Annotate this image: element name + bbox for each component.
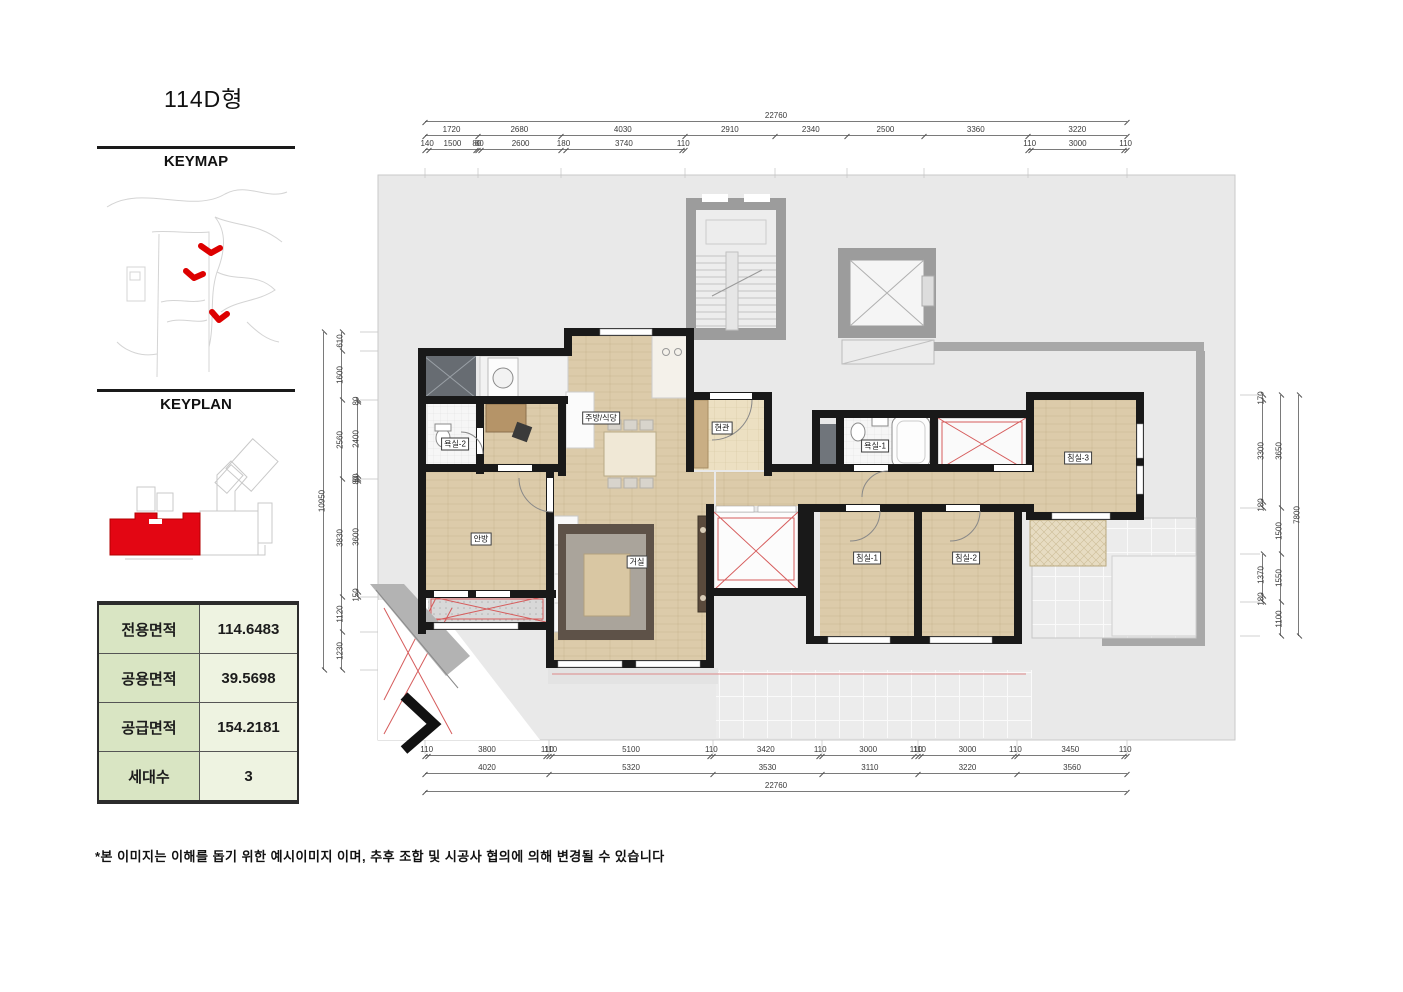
keyplan-header-label: KEYPLAN xyxy=(160,396,232,413)
keyplan-header: KEYPLAN xyxy=(97,389,295,418)
dim-left-total: 10950 xyxy=(323,332,324,670)
room-label-living: 거실 xyxy=(627,556,648,569)
dim-left-mid: 61016002560383011201230 xyxy=(341,332,342,670)
page-title: 114D형 xyxy=(164,80,243,114)
dim-right-inner-bottom: 1370180 xyxy=(1262,554,1263,602)
table-row-label: 공급면적 xyxy=(99,703,200,751)
stair-core xyxy=(686,194,786,340)
table-row-label: 세대수 xyxy=(99,752,200,800)
room-label-bed1: 침실-1 xyxy=(853,552,881,565)
table-row-value: 3 xyxy=(200,752,297,800)
keyplan-image xyxy=(97,415,295,593)
elevator-shaft xyxy=(838,248,936,364)
dim-top-tier3-left: 1401500808026001803740110 xyxy=(425,149,685,150)
room-label-entrance: 현관 xyxy=(712,422,733,435)
dim-bottom-tier1: 1103800110110510011034201103000110110300… xyxy=(425,755,1127,756)
room-label-bed2: 침실-2 xyxy=(952,552,980,565)
dim-top-tier3-right: 1103000110 xyxy=(1028,149,1127,150)
table-row-label: 공용면적 xyxy=(99,654,200,702)
dim-bottom-total: 22760 xyxy=(425,791,1127,792)
area-info-table: 전용면적 114.6483 공용면적 39.5698 공급면적 154.2181… xyxy=(97,601,299,804)
dim-left-inner: 80240080803600150 xyxy=(357,400,358,597)
room-label-kitchen-dining: 주방/식당 xyxy=(582,412,620,425)
keymap-site-drawing xyxy=(97,172,295,386)
table-row: 공용면적 39.5698 xyxy=(99,654,297,703)
table-row-value: 114.6483 xyxy=(200,605,297,653)
table-row-value: 39.5698 xyxy=(200,654,297,702)
room-label-master: 안방 xyxy=(471,533,492,546)
room-label-bed3: 침실-3 xyxy=(1064,452,1092,465)
table-row-value: 154.2181 xyxy=(200,703,297,751)
keyplan-building-drawing xyxy=(97,415,295,593)
keymap-header-label: KEYMAP xyxy=(164,153,228,170)
keyplan-highlight-unit xyxy=(110,513,200,555)
room-label-bath2: 욕실-2 xyxy=(441,438,469,451)
table-row: 공급면적 154.2181 xyxy=(99,703,297,752)
keymap-image xyxy=(97,172,295,386)
dim-top-tier2: 17202680403029102340250033603220 xyxy=(425,135,1127,136)
table-row-label: 전용면적 xyxy=(99,605,200,653)
dim-top-total: 22760 xyxy=(425,121,1127,122)
room-label-bath1: 욕실-1 xyxy=(861,440,889,453)
dim-right-mid: 3650150015501100 xyxy=(1280,395,1281,636)
table-row: 전용면적 114.6483 xyxy=(99,605,297,654)
keymap-highlight-blobs xyxy=(186,246,227,320)
dim-bottom-tier2: 402053203530311032203560 xyxy=(425,773,1127,774)
disclaimer-text: *본 이미지는 이해를 돕기 위한 예시이미지 이며, 추후 조합 및 시공사 … xyxy=(95,846,665,865)
dim-right-inner-top: 1703300180 xyxy=(1262,395,1263,508)
keymap-header: KEYMAP xyxy=(97,146,295,175)
table-row: 세대수 3 xyxy=(99,752,297,800)
dim-right-total: 7800 xyxy=(1298,395,1299,636)
